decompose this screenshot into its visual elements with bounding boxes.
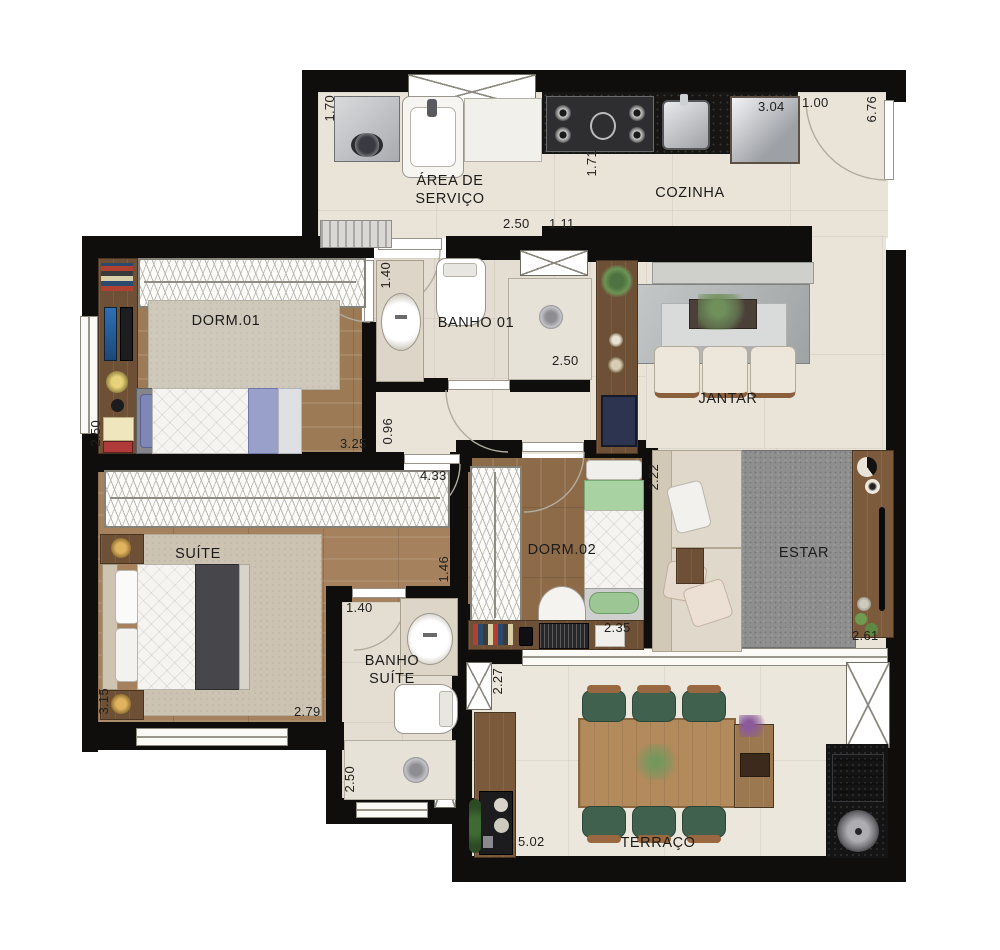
bed-quilt	[152, 388, 250, 454]
notepad	[103, 417, 134, 441]
door-swing-arc	[446, 390, 508, 452]
wall-segment	[510, 378, 590, 392]
side-table	[676, 548, 704, 584]
sideboard	[734, 724, 774, 808]
dimension-label: 2.22	[646, 464, 661, 491]
decor-bowl	[857, 597, 871, 611]
desk-lamp	[106, 371, 128, 393]
decor-plate	[865, 479, 880, 494]
pillow	[115, 628, 139, 682]
dimension-label: 3.25	[340, 436, 367, 451]
laptop	[539, 623, 589, 649]
outdoor-table	[578, 718, 736, 808]
dimension-label: 2.50	[552, 353, 579, 368]
wall-segment	[302, 70, 900, 92]
monitor	[104, 307, 117, 361]
room-label-jantar: JANTAR	[676, 390, 780, 408]
service-counter	[464, 98, 542, 162]
bed-runner	[248, 388, 280, 454]
tv	[879, 507, 885, 611]
burner	[629, 105, 645, 121]
wall-segment	[326, 586, 342, 800]
dimension-label: 2.61	[852, 628, 879, 643]
room-label-area-servico: ÁREA DE SERVIÇO	[390, 172, 510, 208]
faucet	[427, 99, 437, 117]
books	[101, 263, 133, 291]
door-leaf	[352, 588, 406, 598]
faucet	[423, 633, 437, 637]
coffee-station	[479, 791, 513, 855]
dimension-label: 2.50	[503, 216, 530, 231]
window	[356, 802, 428, 818]
dimension-label: 3.04	[758, 99, 785, 114]
duct-shaft	[846, 662, 890, 748]
burner	[555, 105, 571, 121]
window	[80, 316, 98, 434]
dimension-label: 1.46	[436, 556, 451, 583]
single-bed	[136, 388, 300, 452]
pillow	[586, 460, 642, 480]
grill-sink	[837, 810, 879, 852]
door-leaf	[522, 442, 584, 452]
room-label-estar: ESTAR	[754, 544, 854, 562]
bed-foot	[278, 388, 302, 454]
plant	[601, 265, 633, 297]
cooktop	[546, 96, 654, 152]
planter-box	[689, 299, 757, 329]
balcony-counter	[474, 712, 516, 858]
washing-machine	[334, 96, 400, 162]
wardrobe-rail	[494, 472, 496, 618]
floor-plan: ÁREA DE SERVIÇO COZINHA BANHO 01 DORM.01…	[0, 0, 1000, 950]
dimension-label: 3.15	[96, 688, 111, 715]
nightstand	[100, 534, 144, 564]
burner	[555, 127, 571, 143]
cup	[494, 818, 509, 833]
room-label-banho-suite: BANHO SUÍTE	[352, 652, 432, 688]
room-label-cozinha: COZINHA	[638, 184, 742, 202]
desk	[98, 258, 138, 454]
toilet	[394, 684, 458, 734]
laundry-sink	[402, 96, 464, 178]
window	[136, 728, 288, 746]
table-lamp	[111, 538, 131, 558]
plant	[698, 294, 748, 330]
outdoor-chair	[582, 690, 626, 722]
outdoor-chair	[682, 690, 726, 722]
bed-blanket	[195, 564, 241, 690]
plant	[855, 613, 867, 625]
shower-head	[403, 757, 429, 783]
wardrobe	[104, 470, 450, 528]
duct-shaft	[466, 662, 492, 710]
room-label-dorm01: DORM.01	[166, 312, 286, 330]
dimension-label: 1.00	[802, 95, 829, 110]
cup	[494, 798, 508, 812]
room-label-suite: SUÍTE	[150, 545, 246, 563]
dimension-label: 1.71	[584, 150, 599, 177]
grill-grate	[832, 754, 884, 802]
burner-center	[590, 112, 616, 140]
dimension-label: 1.40	[378, 262, 393, 289]
dimension-label: 2.50	[88, 420, 103, 447]
burner	[629, 127, 645, 143]
shower-head	[539, 305, 563, 329]
door-swing-arc	[524, 452, 584, 512]
toilet-tank	[439, 691, 453, 727]
books	[473, 624, 513, 645]
dimension-label: 4.33	[420, 468, 447, 483]
faucet	[395, 315, 407, 319]
phone	[519, 627, 533, 646]
faucet	[680, 94, 688, 106]
drying-rack	[320, 220, 392, 248]
room-label-banho01: BANHO 01	[424, 314, 528, 332]
grill	[826, 744, 888, 858]
pillow	[115, 570, 139, 624]
bed-foot	[239, 564, 250, 690]
dimension-label: 2.79	[294, 704, 321, 719]
tv-rack	[852, 450, 894, 638]
dimension-label: 2.50	[342, 766, 357, 793]
decor-bowl	[608, 357, 624, 373]
dimension-label: 1.11	[549, 216, 575, 231]
duct-shaft	[520, 250, 588, 276]
tray	[740, 753, 770, 777]
decor-shelf	[596, 260, 638, 454]
dimension-label: 6.76	[864, 96, 879, 123]
bed-quilt	[137, 564, 197, 690]
dimension-label: 0.96	[380, 418, 395, 445]
shower-area	[344, 740, 456, 800]
bench	[652, 262, 814, 284]
outdoor-chair	[632, 690, 676, 722]
flowers	[739, 715, 767, 737]
centerpiece-plant	[634, 744, 678, 780]
wall-segment	[82, 236, 98, 316]
kitchen-sink	[662, 100, 710, 150]
decor-bowl	[609, 333, 623, 347]
speaker	[120, 307, 133, 361]
table-lamp	[111, 694, 131, 714]
wall-segment	[452, 856, 906, 882]
toilet-tank	[443, 263, 477, 277]
bolster-pillow	[589, 592, 639, 614]
dimension-label: 5.02	[518, 834, 545, 849]
plant	[469, 799, 481, 853]
dimension-label: 1.70	[322, 95, 337, 122]
dimension-label: 2.35	[604, 620, 631, 635]
sink	[381, 293, 421, 351]
wardrobe-rail	[110, 497, 440, 499]
room-label-dorm02: DORM.02	[504, 541, 620, 559]
picture-frame	[601, 395, 637, 447]
photo-frame	[103, 441, 133, 453]
dimension-label: 2.27	[490, 668, 505, 695]
wardrobe-rail	[144, 281, 356, 283]
room-label-terraco: TERRAÇO	[598, 834, 718, 852]
throw-pillow	[666, 479, 713, 534]
double-bed	[102, 564, 248, 688]
door-leaf	[404, 454, 460, 464]
wall-segment	[82, 452, 404, 472]
decor-plate	[857, 457, 877, 477]
bed-blanket	[584, 480, 644, 512]
wall-segment	[302, 70, 318, 238]
washer-door	[351, 133, 383, 157]
door-leaf	[448, 380, 510, 390]
drain	[855, 828, 862, 835]
wall-segment	[886, 70, 906, 102]
kettle	[483, 836, 493, 848]
decor-ball	[111, 399, 124, 412]
dimension-label: 1.40	[346, 600, 373, 615]
